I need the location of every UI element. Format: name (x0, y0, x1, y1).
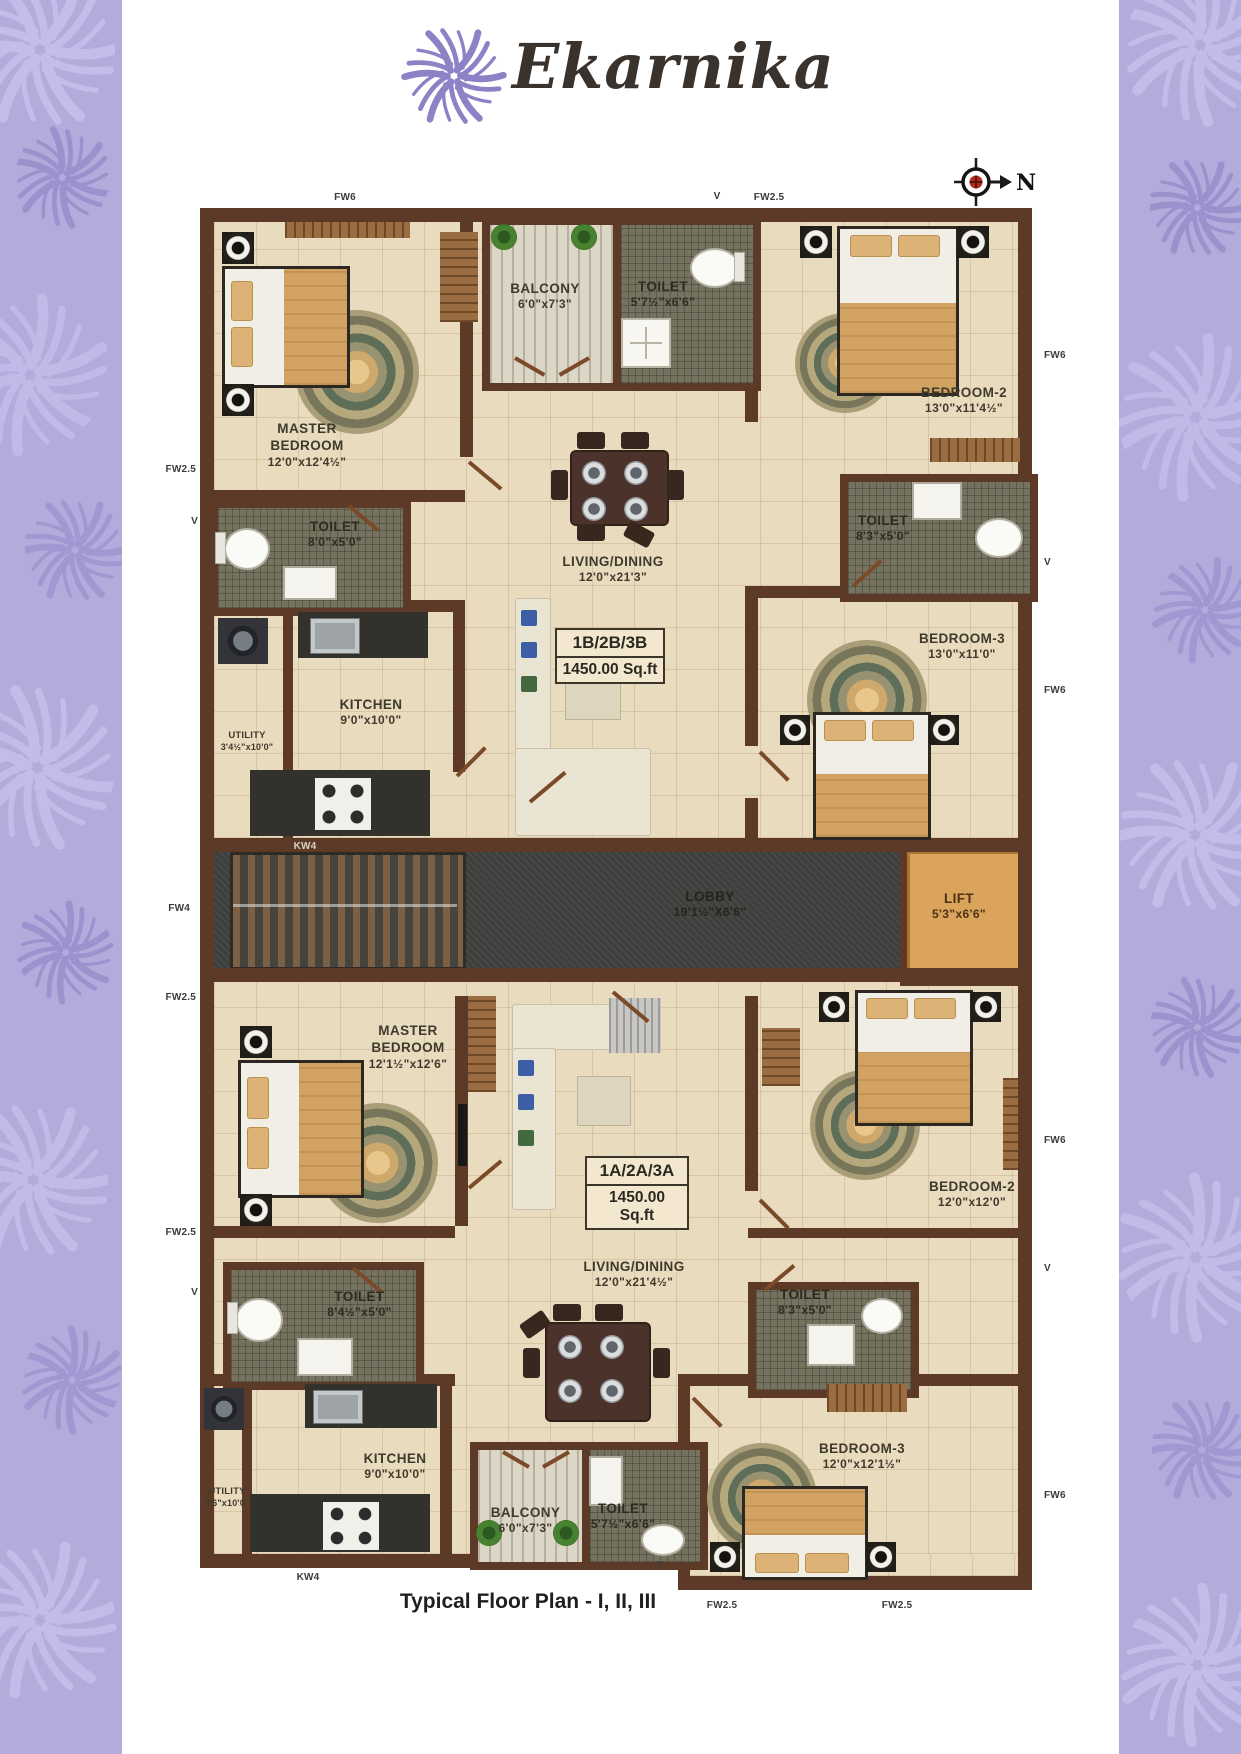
room-name: BEDROOM-2 (907, 1178, 1037, 1195)
pinwheel-pattern-icon (1152, 1400, 1241, 1500)
wall-lower-bedroom2-bottom (748, 1228, 1022, 1238)
wall-left (200, 208, 214, 1568)
unit-badge-lower: 1A/2A/3A 1450.00 Sq.ft (585, 1156, 689, 1230)
wall-upper-bedroom3-top (745, 586, 845, 598)
edge-label-kw4-upper: KW4 (294, 841, 317, 852)
sofa-pillow (521, 642, 537, 658)
room-name: TOILET (833, 512, 933, 529)
room-label-lower-toilet-right: TOILET 8'3"x5'0" (755, 1286, 855, 1319)
bed-blanket (840, 303, 956, 393)
floor-plan: MASTER BEDROOM 12'0"x12'4½" BALCONY 6'0"… (185, 198, 1035, 1598)
nightstand (929, 715, 959, 745)
nightstand (222, 232, 254, 264)
bed-pillow (805, 1553, 849, 1573)
room-label-lower-bedroom3: BEDROOM-3 12'0"x12'1½" (797, 1440, 927, 1473)
bed-pillow (898, 235, 940, 257)
toilet-fixture (235, 1298, 283, 1342)
room-label-lower-balcony: BALCONY 6'0"x7'3" (473, 1504, 578, 1537)
edge-label-right-1: FW6 (1044, 350, 1066, 361)
edge-label-top-fw6: FW6 (334, 192, 356, 203)
unit-type: 1B/2B/3B (557, 630, 663, 658)
room-label-lower-master: MASTER BEDROOM 12'1½"x12'6" (348, 1022, 468, 1072)
sofa (515, 748, 651, 836)
room-name: TOILET (755, 1286, 855, 1303)
pinwheel-pattern-icon (1120, 760, 1241, 910)
sofa-pillow (521, 676, 537, 692)
wall-lobby-bottom (200, 968, 1032, 982)
room-name: MASTER BEDROOM (348, 1022, 468, 1057)
pinwheel-pattern-icon (0, 269, 136, 480)
nightstand (222, 384, 254, 416)
pinwheel-pattern-icon (1100, 0, 1241, 145)
compass-north-label: N (1016, 170, 1036, 196)
pinwheel-pattern-icon (0, 1533, 127, 1707)
room-dims: 5'7½"x6'6" (573, 1517, 673, 1532)
room-name: UTILITY (187, 1486, 267, 1498)
bed-blanket (284, 269, 347, 385)
edge-label-right-6: FW6 (1044, 1490, 1066, 1501)
chair (667, 470, 684, 500)
plate (623, 460, 649, 486)
pinwheel-pattern-icon (0, 673, 132, 863)
room-label-upper-balcony: BALCONY 6'0"x7'3" (495, 280, 595, 313)
room-dims: 6'0"x7'3" (473, 1521, 578, 1536)
bed-pillow (824, 720, 866, 741)
wardrobe (930, 438, 1020, 462)
room-dims: 13'0"x11'4½" (899, 401, 1029, 416)
room-name: MASTER BEDROOM (247, 420, 367, 455)
bed-blanket (816, 774, 928, 837)
room-name: TOILET (612, 278, 714, 295)
edge-label-right-5: V (1044, 1263, 1051, 1274)
room-name: KITCHEN (311, 696, 431, 713)
pinwheel-pattern-icon (1150, 160, 1241, 255)
wardrobe (285, 222, 410, 238)
nightstand (780, 715, 810, 745)
bed-upper-bedroom3 (813, 712, 931, 840)
plate (599, 1334, 625, 1360)
tv-panel (458, 1104, 467, 1166)
bed-pillow (755, 1553, 799, 1573)
room-name: KITCHEN (335, 1450, 455, 1467)
washing-machine (204, 1388, 244, 1430)
chair (577, 432, 605, 449)
toilet-tank (734, 252, 745, 282)
nightstand (800, 226, 832, 258)
coffee-table (577, 1076, 631, 1126)
wall-lower-master-bottom (200, 1226, 455, 1238)
room-label-upper-utility: UTILITY 3'4½"x10'0" (207, 730, 287, 754)
plate (599, 1378, 625, 1404)
edge-label-left-2: V (191, 516, 198, 527)
room-dims: 3'4½"x10'0" (207, 742, 287, 754)
unit-type: 1A/2A/3A (587, 1158, 687, 1186)
sofa-pillow (518, 1094, 534, 1110)
room-label-upper-bedroom2: BEDROOM-2 13'0"x11'4½" (899, 384, 1029, 417)
room-label-upper-living: LIVING/DINING 12'0"x21'3" (553, 553, 673, 586)
nightstand (240, 1026, 272, 1058)
edge-label-left-3: FW4 (168, 903, 190, 914)
pinwheel-pattern-icon (4, 1312, 141, 1449)
room-dims: 12'0"x21'4½" (574, 1275, 694, 1290)
plate (581, 496, 607, 522)
room-name: BEDROOM-3 (897, 630, 1027, 647)
room-dims: 9'0"x10'0" (335, 1467, 455, 1482)
edge-label-left-5: FW2.5 (166, 1227, 196, 1238)
pinwheel-pattern-icon (2, 889, 128, 1015)
page: Ekarnika N (0, 0, 1241, 1754)
edge-label-bottom-v: V (657, 1560, 664, 1571)
room-name: LIVING/DINING (553, 553, 673, 570)
sink (807, 1324, 855, 1366)
wall-upper-bedroom3-left (745, 586, 758, 746)
edge-label-bottom-kw4: KW4 (297, 1572, 320, 1583)
room-name: LIVING/DINING (574, 1258, 694, 1275)
room-label-upper-master: MASTER BEDROOM 12'0"x12'4½" (247, 420, 367, 470)
room-dims: 8'0"x5'0" (285, 535, 385, 550)
toilet-fixture (224, 528, 270, 570)
edge-label-right-3: FW6 (1044, 685, 1066, 696)
sofa-pillow (518, 1130, 534, 1146)
brand-logo-icon (400, 28, 508, 124)
room-name: LOBBY (650, 888, 770, 905)
nightstand (866, 1542, 896, 1572)
room-name: UTILITY (207, 730, 287, 742)
room-dims: 8'3"x5'0" (755, 1303, 855, 1318)
sink (589, 1456, 623, 1506)
chair (551, 470, 568, 500)
unit-area: 1450.00 Sq.ft (557, 658, 663, 682)
room-dims: 13'0"x11'0" (897, 647, 1027, 662)
toilet-tank (227, 1302, 238, 1334)
room-dims: 9'0"x10'0" (311, 713, 431, 728)
kitchen-sink (313, 1390, 363, 1424)
edge-label-left-4: FW2.5 (166, 992, 196, 1003)
chair (577, 524, 605, 541)
room-dims: 5'7½"x6'6" (612, 295, 714, 310)
washing-machine (218, 618, 268, 664)
toilet-fixture (975, 518, 1023, 558)
plant (491, 224, 517, 250)
room-label-lower-kitchen: KITCHEN 9'0"x10'0" (335, 1450, 455, 1483)
edge-label-right-2: V (1044, 557, 1051, 568)
shower-tray (621, 318, 671, 368)
bed-pillow (231, 327, 253, 367)
chair (523, 1348, 540, 1378)
room-label-upper-kitchen: KITCHEN 9'0"x10'0" (311, 696, 431, 729)
chair (553, 1304, 581, 1321)
stove (315, 778, 371, 830)
stair-landing-line (233, 904, 457, 907)
plant (571, 224, 597, 250)
bed-upper-bedroom2 (837, 226, 959, 396)
wall-lower-bedroom2-left (745, 996, 758, 1191)
room-label-lower-toilet-left: TOILET 8'4½"x5'0" (297, 1288, 422, 1321)
sink (297, 1338, 353, 1376)
pinwheel-pattern-icon (1134, 539, 1241, 680)
room-name: LIFT (903, 890, 1015, 907)
room-dims: 12'0"x12'0" (907, 1195, 1037, 1210)
room-dims: 6'0"x7'3" (495, 297, 595, 312)
edge-label-top-v: V (714, 191, 721, 202)
room-name: BEDROOM-3 (797, 1440, 927, 1457)
room-name: TOILET (285, 518, 385, 535)
sofa-pillow (518, 1060, 534, 1076)
room-name: BALCONY (495, 280, 595, 297)
room-label-lower-bedroom2: BEDROOM-2 12'0"x12'0" (907, 1178, 1037, 1211)
bed-blanket (858, 1052, 970, 1124)
room-name: TOILET (573, 1500, 673, 1517)
toilet-tank (215, 532, 226, 564)
plate (557, 1334, 583, 1360)
bed-lower-master (238, 1060, 364, 1198)
pinwheel-pattern-icon (1139, 969, 1241, 1085)
room-label-upper-bedroom3: BEDROOM-3 13'0"x11'0" (897, 630, 1027, 663)
bed-pillow (914, 998, 956, 1019)
nightstand (971, 992, 1001, 1022)
unit-area: 1450.00 Sq.ft (587, 1186, 687, 1228)
shoe-rack (440, 232, 478, 322)
room-dims: 3'6"x10'0" (187, 1498, 267, 1510)
plate (581, 460, 607, 486)
edge-label-left-6: V (191, 1287, 198, 1298)
room-dims: 5'3"x6'6" (903, 907, 1015, 922)
room-dims: 8'3"x5'0" (833, 529, 933, 544)
chair (621, 432, 649, 449)
room-label-upper-toilet-right: TOILET 8'3"x5'0" (833, 512, 933, 545)
bed-lower-bedroom2 (855, 990, 973, 1126)
pinwheel-pattern-icon (0, 0, 115, 125)
bed-pillow (850, 235, 892, 257)
room-label-lower-utility: UTILITY 3'6"x10'0" (187, 1486, 267, 1510)
toilet-fixture (861, 1298, 903, 1334)
room-label-upper-toilet-top: TOILET 5'7½"x6'6" (612, 278, 714, 311)
bed-pillow (231, 281, 253, 321)
room-dims: 19'1½"X6'6" (650, 905, 770, 920)
plate (557, 1378, 583, 1404)
nightstand (957, 226, 989, 258)
room-dims: 8'4½"x5'0" (297, 1305, 422, 1320)
bed-pillow (866, 998, 908, 1019)
entry-drape (609, 998, 661, 1053)
room-label-lobby: LOBBY 19'1½"X6'6" (650, 888, 770, 921)
edge-label-left-1: FW2.5 (166, 464, 196, 475)
sofa (512, 1004, 616, 1050)
edge-label-right-4: FW6 (1044, 1135, 1066, 1146)
pinwheel-pattern-icon (0, 1105, 108, 1255)
bed-pillow (872, 720, 914, 741)
nightstand (710, 1542, 740, 1572)
edge-label-bottom-fw25b: FW2.5 (882, 1600, 912, 1611)
wardrobe (1003, 1078, 1018, 1170)
sofa-pillow (521, 610, 537, 626)
wardrobe (468, 996, 496, 1092)
edge-label-top-fw25: FW2.5 (754, 192, 784, 203)
room-label-lower-toilet-bottom: TOILET 5'7½"x6'6" (573, 1500, 673, 1533)
room-dims: 12'0"x12'4½" (247, 455, 367, 470)
wardrobe (827, 1384, 907, 1412)
pinwheel-pattern-icon (25, 500, 125, 600)
bed-pillow (247, 1127, 269, 1169)
bed-upper-master (222, 266, 350, 388)
room-dims: 12'0"x21'3" (553, 570, 673, 585)
wall-upper-bedroom3-left-stub (745, 798, 758, 838)
room-dims: 12'1½"x12'6" (348, 1057, 468, 1072)
room-dims: 12'0"x12'1½" (797, 1457, 927, 1472)
pinwheel-pattern-icon (2, 117, 124, 239)
chair (595, 1304, 623, 1321)
caption: Typical Floor Plan - I, II, III (378, 1590, 678, 1614)
brand-name: Ekarnika (512, 30, 835, 103)
bed-blanket (745, 1489, 865, 1535)
room-name: TOILET (297, 1288, 422, 1305)
kitchen-sink (310, 618, 360, 654)
plate (623, 496, 649, 522)
room-label-upper-toilet-left: TOILET 8'0"x5'0" (285, 518, 385, 551)
wall-upper-kitchen-right (453, 600, 465, 772)
bed-pillow (247, 1077, 269, 1119)
wardrobe (762, 1028, 800, 1086)
room-label-lift: LIFT 5'3"x6'6" (903, 890, 1015, 923)
chair (653, 1348, 670, 1378)
nightstand (819, 992, 849, 1022)
nightstand (240, 1194, 272, 1226)
bed-lower-bedroom3 (742, 1486, 868, 1580)
bed-blanket (299, 1063, 361, 1195)
room-name: BALCONY (473, 1504, 578, 1521)
sink (283, 566, 337, 600)
room-label-lower-living: LIVING/DINING 12'0"x21'4½" (574, 1258, 694, 1291)
stove (323, 1502, 379, 1550)
staircase (230, 852, 466, 970)
wall-lobby-top (200, 838, 1032, 852)
room-name: BEDROOM-2 (899, 384, 1029, 401)
unit-badge-upper: 1B/2B/3B 1450.00 Sq.ft (555, 628, 665, 684)
edge-label-bottom-fw25a: FW2.5 (707, 1600, 737, 1611)
